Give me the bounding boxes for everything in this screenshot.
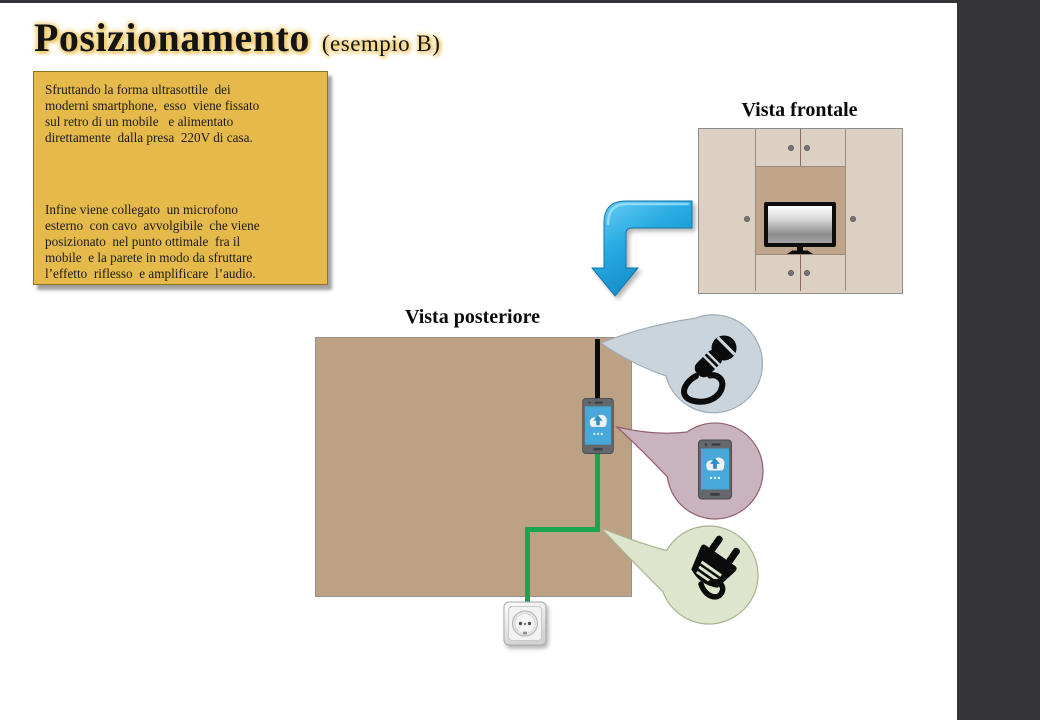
door-knob [850, 216, 856, 222]
front-view-label: Vista frontale [698, 99, 901, 122]
door-knob [744, 216, 750, 222]
callout-plug [593, 520, 771, 630]
cabinet-door-split [800, 129, 801, 166]
info-paragraph-1: Sfruttando la forma ultrasottile dei mod… [45, 82, 319, 146]
door-knob [804, 145, 810, 151]
front-view-diagram [698, 128, 903, 294]
cabinet-door-split [800, 255, 801, 291]
rear-view-label: Vista posteriore [315, 306, 630, 329]
callout-microphone [595, 310, 780, 418]
tv-icon [763, 201, 837, 255]
wall-outlet-icon [503, 600, 551, 650]
door-knob [788, 145, 794, 151]
smartphone-icon [699, 440, 732, 499]
curved-arrow-icon [588, 192, 700, 304]
title-suffix: (esempio B) [322, 31, 441, 56]
slide: { "title": { "main": "Posizionamento", "… [0, 0, 1040, 720]
cabinet-divider [756, 166, 845, 167]
top-border [0, 0, 1040, 3]
title-main: Posizionamento [34, 15, 310, 60]
power-cable [525, 527, 530, 607]
info-paragraph-2: Infine viene collegato un microfono este… [45, 202, 319, 282]
power-cable [525, 527, 600, 532]
callout-smartphone [608, 420, 778, 525]
rear-panel [315, 337, 632, 597]
info-box: Sfruttando la forma ultrasottile dei mod… [33, 71, 328, 285]
cabinet-divider [845, 129, 846, 291]
side-panel [957, 0, 1040, 720]
door-knob [804, 270, 810, 276]
door-knob [788, 270, 794, 276]
cabinet-divider [755, 129, 756, 291]
page-title: Posizionamento(esempio B) [34, 14, 440, 61]
